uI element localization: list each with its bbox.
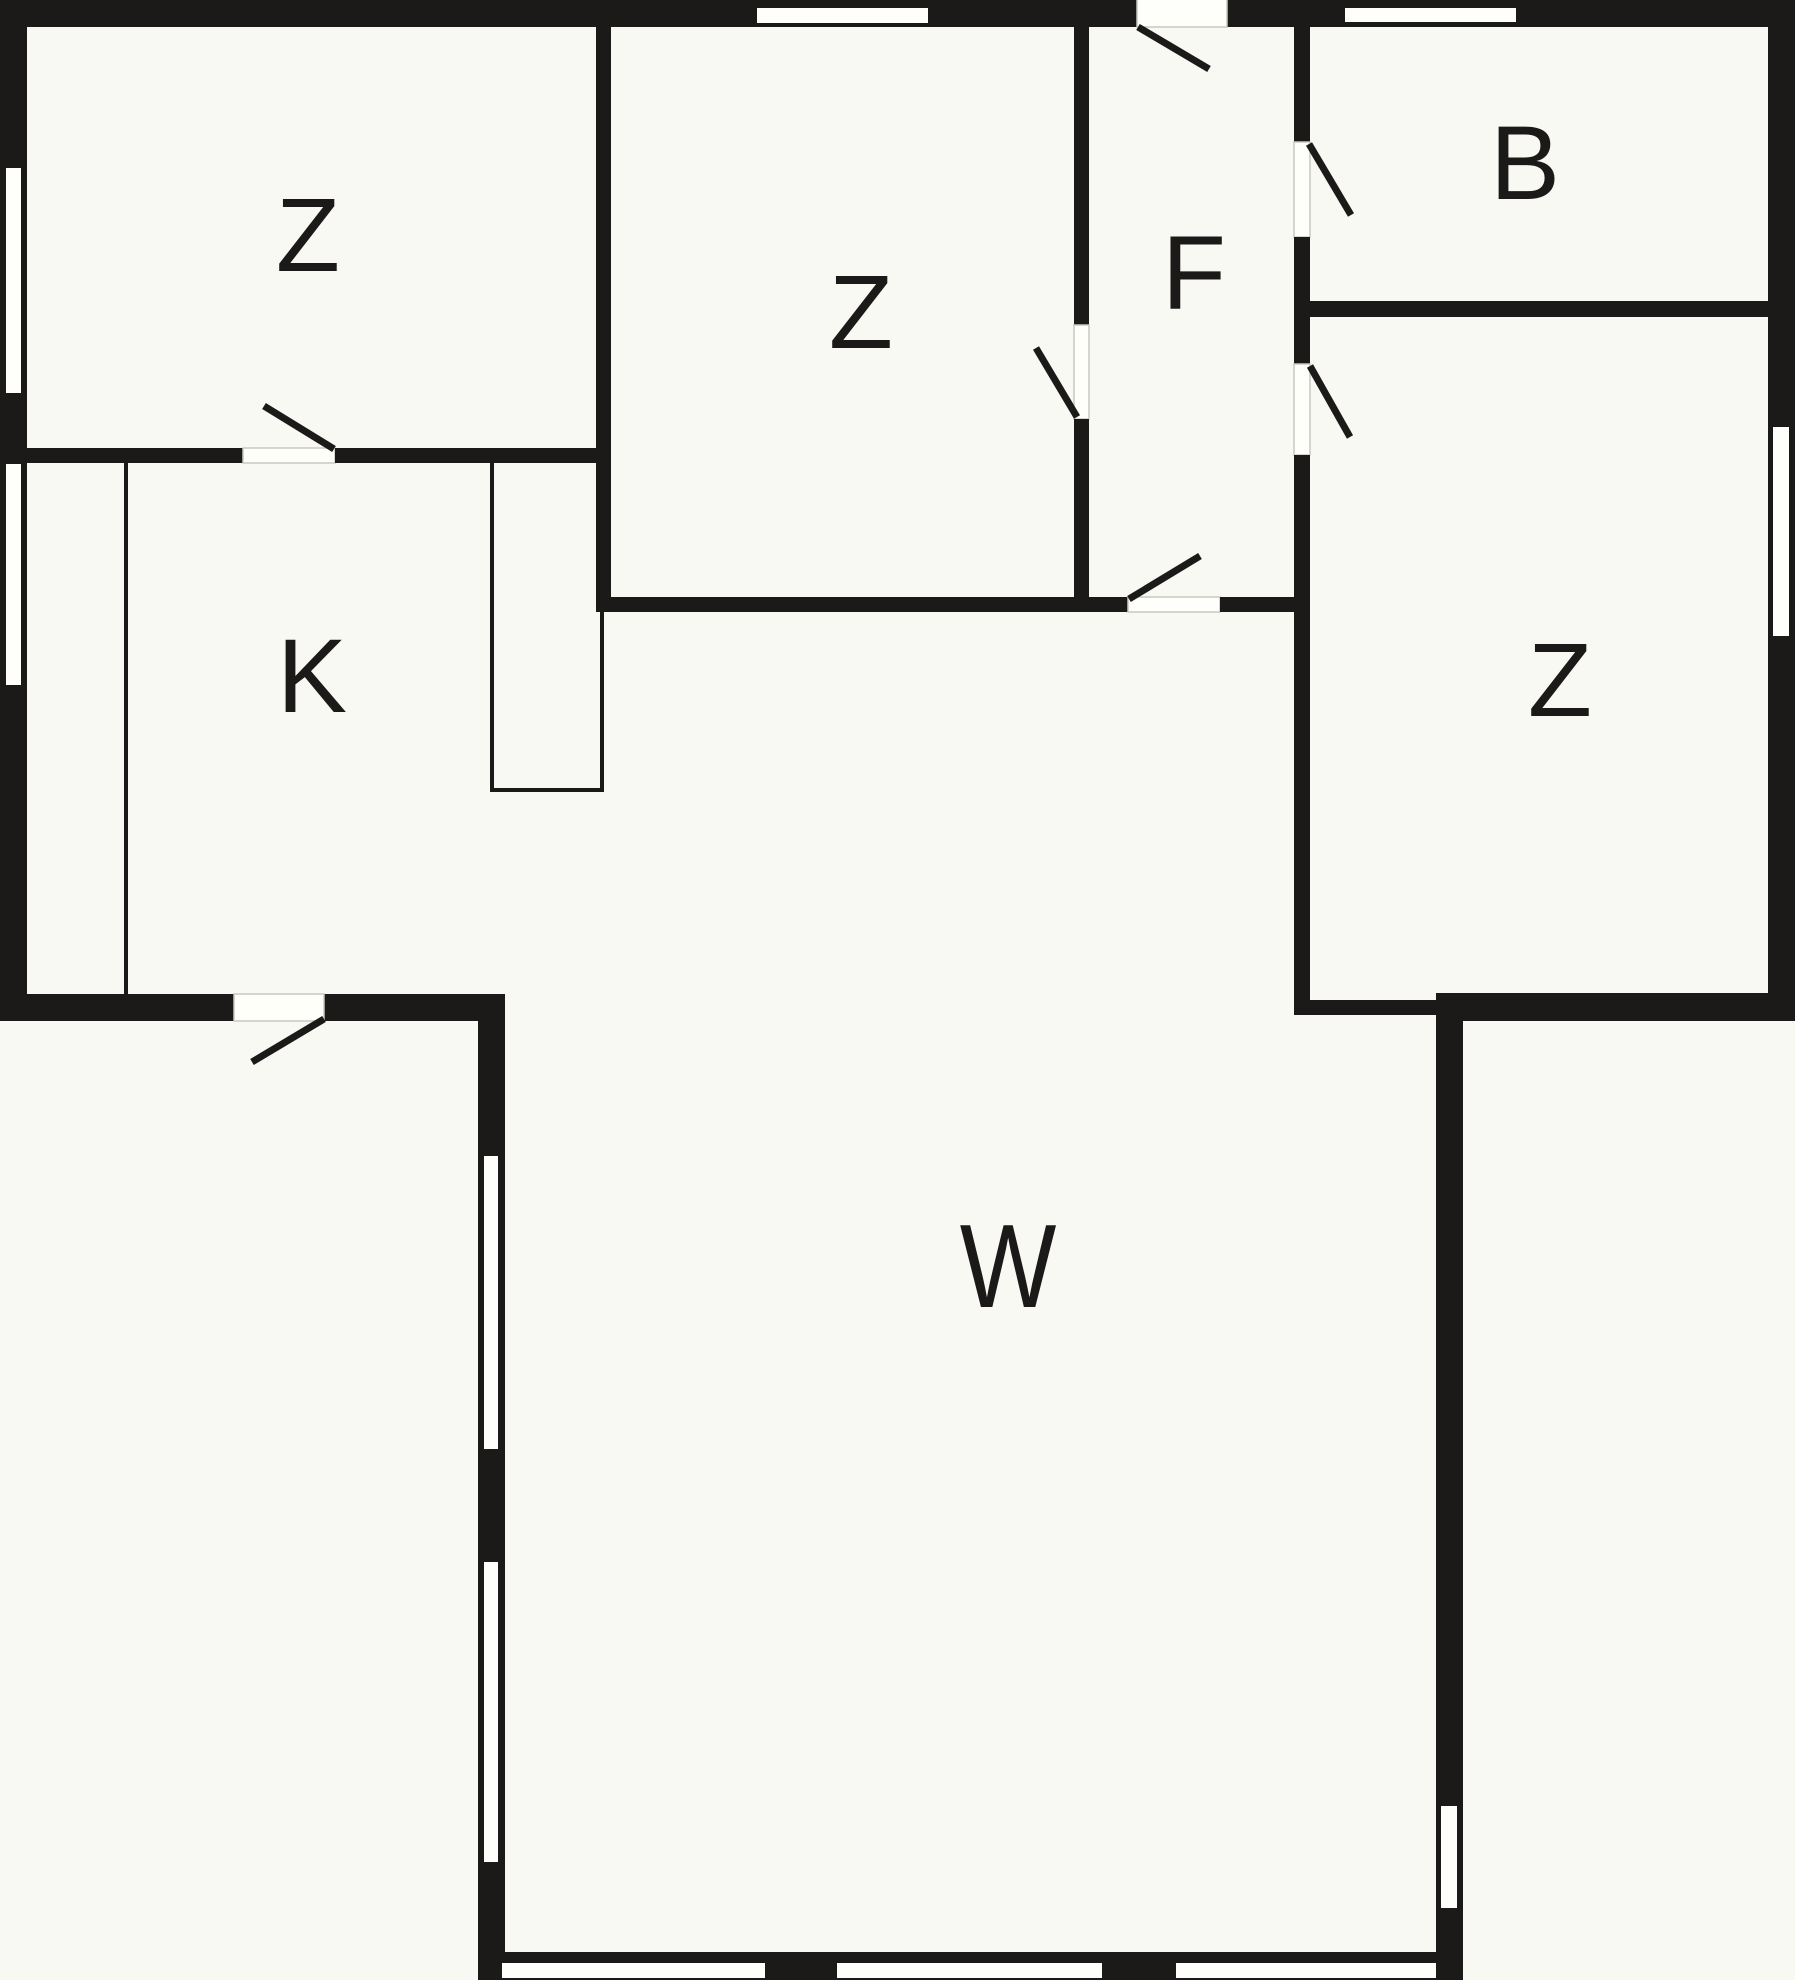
svg-text:Z: Z	[276, 177, 340, 294]
svg-text:F: F	[1162, 215, 1226, 332]
svg-text:Z: Z	[1528, 622, 1592, 739]
svg-text:K: K	[277, 618, 347, 735]
svg-text:W: W	[960, 1200, 1057, 1333]
svg-text:B: B	[1490, 105, 1560, 222]
svg-text:Z: Z	[829, 254, 893, 371]
